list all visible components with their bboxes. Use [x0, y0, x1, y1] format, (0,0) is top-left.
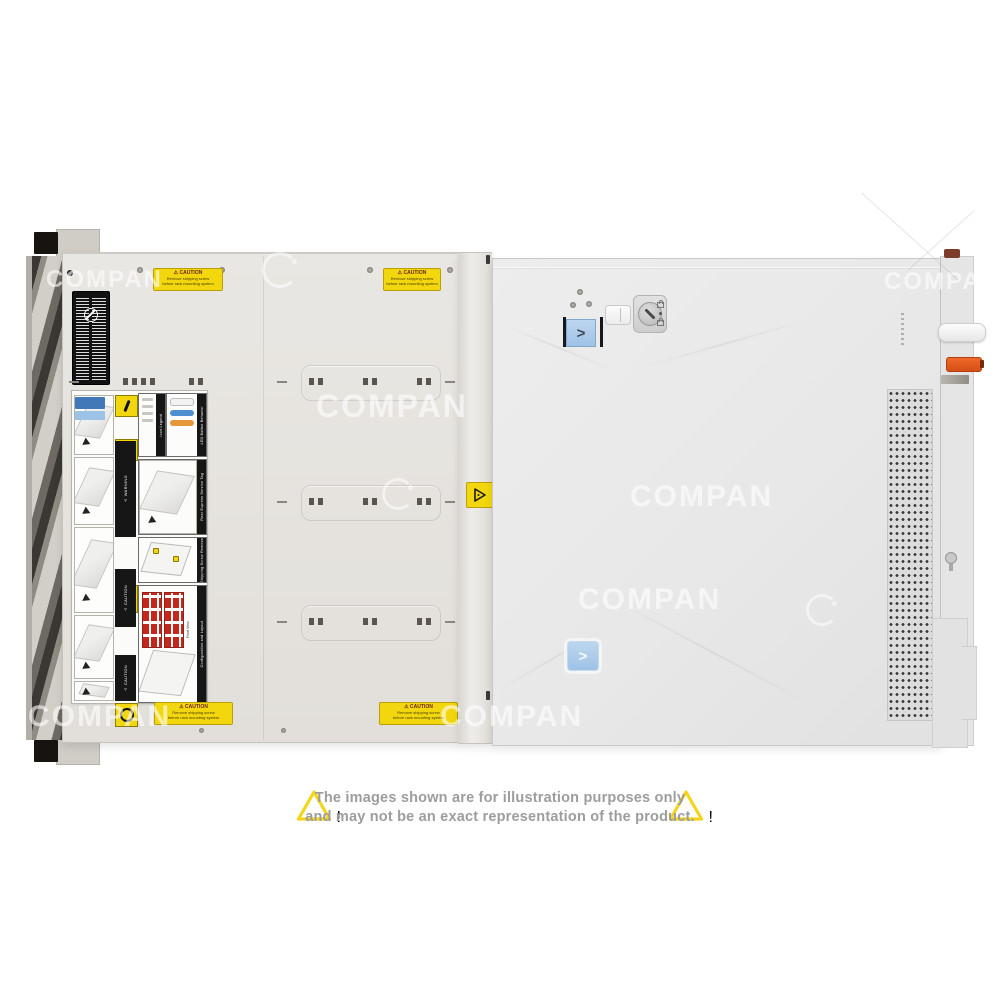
warning-triangle-label: [466, 482, 494, 508]
left-cover-panel: ⚠ CAUTION Remove shipping screw before r…: [62, 252, 460, 743]
secondary-release-button: >: [567, 641, 599, 671]
icon-legend-body: [139, 394, 156, 456]
shipping-screw-diagram: [139, 538, 197, 582]
caution-bar-text: ⚠ CAUTION: [123, 585, 128, 612]
lock-icon: [657, 320, 664, 326]
screw: [281, 728, 286, 733]
screw: [586, 301, 592, 307]
cover-seam-line: [263, 256, 264, 740]
caution-line: before rack mounting system: [154, 281, 222, 286]
caution-text-bar: ⚠ CAUTION: [115, 655, 136, 701]
screw: [577, 289, 583, 295]
hinge-pin: [486, 691, 490, 700]
caution-line: before rack mounting system: [384, 281, 440, 286]
rack-ear-top: [34, 232, 58, 254]
chevron-right-icon: >: [579, 649, 588, 664]
etch-dash: [445, 621, 455, 623]
cover-fold-line: [493, 267, 941, 268]
rack-ear-bottom: [34, 740, 58, 762]
etch-dash: [277, 621, 287, 623]
lock-indicator-dot: [659, 312, 662, 315]
caution-text-bar: ⚠ CAUTION: [115, 569, 136, 627]
led-behavior-section: LED Button Behavior: [166, 393, 207, 457]
slide-latch: [605, 305, 631, 325]
configuration-section: Front View Configuration and Layout: [138, 585, 207, 703]
screw: [199, 728, 204, 733]
screw: [137, 267, 143, 273]
main-top-cover: > >: [492, 258, 942, 746]
thumbscrew: [945, 552, 957, 571]
service-tag-title-bar: Rear Express Service Tag: [197, 460, 206, 534]
cover-release-latch-frame: >: [563, 317, 603, 347]
drive-bay-grid: [142, 592, 162, 648]
timer-pictogram: [115, 703, 138, 727]
product-photo-scene: ⚠ CAUTION Remove shipping screw before r…: [0, 0, 1000, 1000]
drive-bay-grid: [164, 592, 184, 648]
warning-bar-text: ⚠ WARNING: [123, 475, 128, 503]
configuration-title-bar: Configuration and Layout: [197, 586, 206, 702]
regulatory-service-label: [72, 291, 110, 385]
etched-text-mark: [901, 311, 904, 345]
rear-screw-nub: [944, 249, 960, 258]
led-bar-white: [170, 398, 194, 406]
icon-legend-title: Icon Legend: [159, 414, 163, 437]
service-instruction-panel: ⚠ WARNING ⚠ CAUTION ⚠ CAUTION Icon Legen: [71, 390, 208, 704]
psu-handle: [938, 323, 986, 342]
etch-dash: [277, 381, 287, 383]
vent-slot: [417, 618, 431, 625]
hazard-icon: [123, 400, 130, 412]
cover-crease: [610, 597, 814, 707]
cover-open-diagram: [74, 615, 114, 679]
etch-dash: [445, 381, 455, 383]
caution-shipping-screw-label: ⚠ CAUTION Remove shipping screw before r…: [379, 702, 458, 725]
screw: [447, 267, 453, 273]
cover-keylock: [633, 295, 667, 333]
configuration-title: Configuration and Layout: [200, 621, 204, 667]
shipping-screw-section: Shipping Screw Removal: [138, 537, 207, 583]
led-bar-orange: [170, 420, 194, 426]
thumbscrew-head: [945, 552, 957, 564]
small-diagram: [74, 681, 114, 701]
cover-hinge-seam: [458, 252, 492, 744]
warning-pictogram: [115, 395, 138, 417]
caution-shipping-screw-label: ⚠ CAUTION Remove shipping screw before r…: [154, 702, 233, 725]
hot-surface-warning-icon: [472, 487, 488, 503]
icon-legend-section: Icon Legend: [138, 393, 166, 457]
vent-slot: [309, 618, 323, 625]
caution-line: before rack mounting system: [380, 715, 457, 720]
chevron-right-icon: >: [577, 326, 586, 341]
rack-tip-diagram: [74, 527, 114, 613]
shipping-screw-title: Shipping Screw Removal: [200, 538, 204, 582]
vent-slot: [141, 378, 155, 385]
configuration-body: Front View: [139, 586, 197, 702]
caution-shipping-screw-label: ⚠ CAUTION Remove shipping screw before r…: [383, 268, 441, 291]
vent-slot: [123, 378, 137, 385]
service-tag-diagram: [139, 460, 197, 534]
vent-slot: [417, 378, 431, 385]
regulatory-emblem-icon: [84, 308, 98, 322]
clock-icon: [120, 708, 134, 722]
blue-subheader-tag: [75, 411, 105, 420]
blue-header-tag: [75, 397, 105, 409]
vent-slot: [309, 378, 323, 385]
led-behavior-title: LED Button Behavior: [200, 406, 204, 444]
caution-shipping-screw-label: ⚠ CAUTION Remove shipping screw before r…: [153, 268, 223, 291]
legend-icon-row: [142, 405, 153, 408]
screw: [367, 267, 373, 273]
etch-dash: [277, 501, 287, 503]
vent-slot: [309, 498, 323, 505]
icon-legend-title-bar: Icon Legend: [156, 394, 165, 456]
thumbscrew-stem: [949, 564, 953, 571]
unlock-icon: [657, 302, 664, 308]
service-tag-section: Rear Express Service Tag: [138, 459, 207, 535]
key-slot-icon: [644, 308, 655, 319]
rail-diagram: [74, 457, 114, 525]
front-view-label: Front View: [186, 594, 190, 638]
vent-slot: [417, 498, 431, 505]
vent-slot: [363, 618, 377, 625]
etch-dash: [69, 381, 79, 383]
led-bar-blue: [170, 410, 194, 416]
psu-bay-bump: [962, 646, 977, 720]
screw: [570, 302, 576, 308]
chassis-iso-sketch: [138, 650, 195, 696]
screw: [67, 270, 73, 276]
led-behavior-title-bar: LED Button Behavior: [197, 394, 206, 456]
vent-slot: [189, 378, 203, 385]
vent-slot: [363, 378, 377, 385]
caution-line: before rack mounting system: [155, 715, 232, 720]
legend-icon-row: [142, 419, 153, 422]
shipping-screw-title-bar: Shipping Screw Removal: [197, 538, 206, 582]
screw-dot: [173, 556, 179, 562]
service-tag-title: Rear Express Service Tag: [200, 473, 204, 521]
disclaimer-line-2: and may not be an exact representation o…: [0, 809, 1000, 825]
caution-bar-text: ⚠ CAUTION: [123, 665, 128, 692]
legend-icon-row: [142, 412, 153, 415]
etch-dash: [445, 501, 455, 503]
chassis-sketch: [140, 542, 191, 576]
psu-release-lever: [946, 357, 982, 372]
led-behavior-body: [167, 394, 197, 456]
vent-slot: [363, 498, 377, 505]
disclaimer-line-1: The images shown are for illustration pu…: [0, 790, 1000, 806]
hinge-pin: [486, 255, 490, 264]
psu-vent-grid: [887, 389, 933, 721]
screw-dot: [153, 548, 159, 554]
latch-divider: [620, 308, 621, 322]
warning-text-bar: ⚠ WARNING: [115, 441, 136, 537]
rear-latch: [941, 375, 969, 384]
legend-icon-row: [142, 398, 153, 401]
cover-release-button: >: [566, 319, 596, 347]
